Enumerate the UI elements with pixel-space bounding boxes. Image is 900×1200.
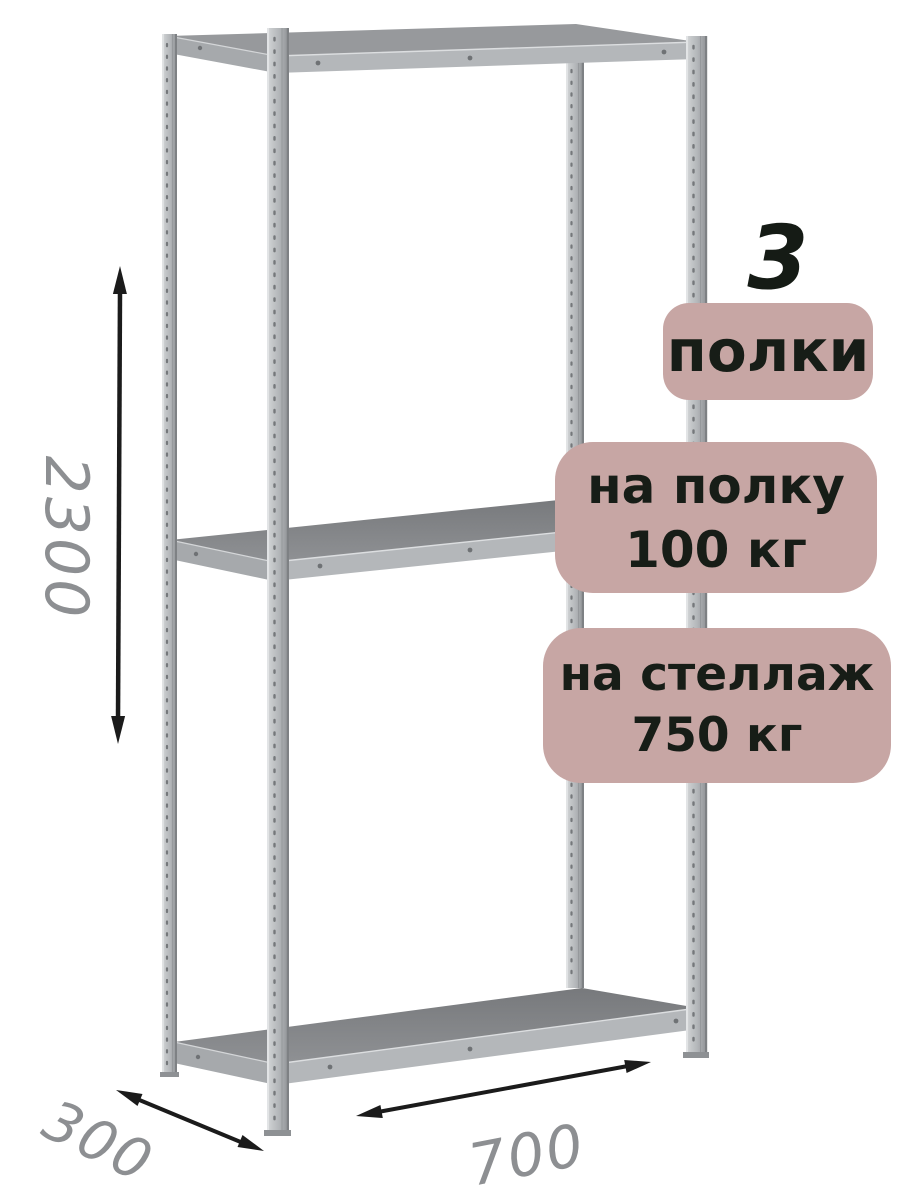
rack-load-badge: на стеллаж 750 кг xyxy=(543,628,891,783)
shelf-count-label: полки xyxy=(667,314,869,388)
width-dimension-arrow xyxy=(356,1060,651,1118)
height-dimension-label: 2300 xyxy=(31,456,101,621)
rack-shelf-top xyxy=(168,24,697,73)
shelving-rack-illustration xyxy=(0,0,900,1200)
rack-shelf-bottom xyxy=(174,988,698,1085)
shelf-count-value: 3 xyxy=(747,207,808,310)
product-image: 2300 300 700 3 полки на полку 100 кг на … xyxy=(0,0,900,1200)
rack-post-front-left xyxy=(264,28,291,1136)
shelf-count-badge: полки xyxy=(663,303,873,400)
rack-load-line2: 750 кг xyxy=(632,706,803,766)
rack-post-back-left xyxy=(160,34,179,1077)
height-dimension-arrow xyxy=(111,266,127,744)
shelf-load-badge: на полку 100 кг xyxy=(555,442,877,593)
shelf-load-line2: 100 кг xyxy=(625,518,807,582)
shelf-load-line1: на полку xyxy=(587,454,845,518)
rack-load-line1: на стеллаж xyxy=(560,645,875,705)
